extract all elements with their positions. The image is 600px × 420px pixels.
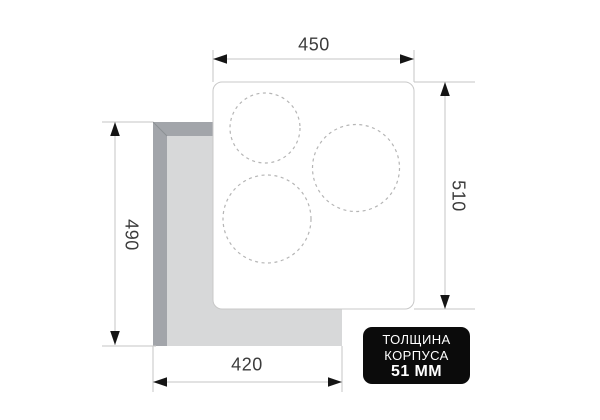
arrow-left-icon [153,377,167,387]
hob-panel [213,82,414,309]
diagram-canvas [0,0,600,420]
body-thickness-badge: ТОЛЩИНА КОРПУСА 51 ММ [363,327,470,384]
hob-dimension-diagram: 450 510 490 420 ТОЛЩИНА КОРПУСА 51 ММ [0,0,600,420]
dimension-label-top-width: 450 [298,35,330,56]
arrow-right-icon [328,377,342,387]
dimension-label-bottom-cutout-width: 420 [231,355,263,376]
badge-line-1: ТОЛЩИНА [382,332,450,348]
badge-thickness-value: 51 ММ [391,364,442,380]
dimension-label-right-depth: 510 [448,180,469,212]
arrow-up-icon [110,122,120,136]
badge-line-2: КОРПУСА [384,348,448,364]
arrow-down-icon [440,295,450,309]
arrow-left-icon [213,54,227,64]
arrow-right-icon [400,54,414,64]
arrow-up-icon [440,82,450,96]
dimension-label-left-cutout-height: 490 [121,219,142,251]
arrow-down-icon [110,331,120,345]
